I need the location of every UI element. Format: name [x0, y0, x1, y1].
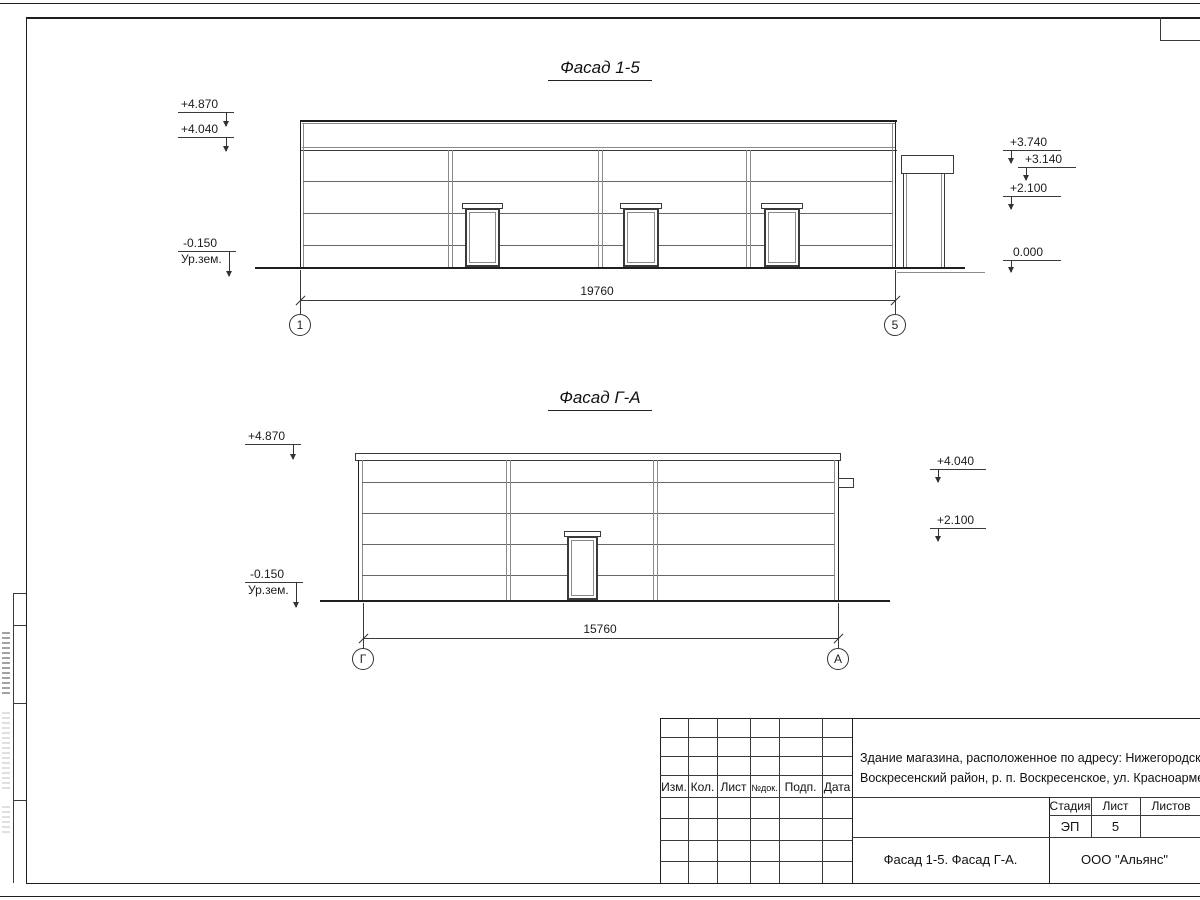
titleblock-row-line — [660, 756, 852, 757]
facade1-wall-right — [895, 120, 896, 268]
door-leaf — [627, 212, 655, 263]
elevation-mark-label: -0.150 — [250, 567, 284, 581]
dimension-line — [300, 300, 895, 301]
revision-col-header: Кол. — [688, 780, 717, 794]
titleblock-top — [660, 718, 1200, 719]
revision-col-header: Дата — [822, 780, 852, 794]
facade2-pilaster — [506, 460, 507, 600]
axis-circle: 5 — [884, 314, 906, 336]
facade2-siding-line — [362, 575, 834, 576]
ground-level-label: Ур.зем. — [181, 252, 222, 266]
elevation-arrow-icon — [1011, 196, 1012, 209]
elevation-mark-label: +4.040 — [181, 122, 218, 136]
facade1-pilaster — [448, 150, 449, 268]
annex-wall-left — [903, 174, 904, 268]
annex-wall-right-inner — [941, 174, 942, 268]
facade2-wall-right-inner — [834, 460, 835, 600]
facade1-ground-line-right — [897, 272, 985, 273]
axis-circle: Г — [352, 648, 374, 670]
dimension-value: 15760 — [550, 622, 650, 636]
axis-circle: 1 — [289, 314, 311, 336]
stamp-strip-divider — [13, 703, 26, 704]
elevation-mark-label: +4.870 — [248, 429, 285, 443]
extension-line — [300, 270, 301, 314]
elevation-mark-label: +2.100 — [1010, 181, 1047, 195]
elevation-arrow-icon — [226, 112, 227, 126]
door — [567, 536, 598, 600]
titleblock-column-line — [822, 718, 823, 883]
stamp-strip-line — [13, 593, 14, 883]
drawing-sheet: Фасад 1-5 +4.870 +4.040 -0.150 Ур.зем. +… — [0, 0, 1200, 900]
facade1-wall-left — [300, 120, 301, 268]
elevation-mark-label: +3.140 — [1025, 152, 1062, 166]
stamp-vertical-text — [2, 712, 10, 792]
facade1-pilaster — [452, 150, 453, 268]
revision-col-header: №док. — [750, 783, 779, 793]
sheet-header: Лист — [1091, 799, 1140, 813]
sheet-name: Фасад 1-5. Фасад Г-А. — [852, 852, 1049, 867]
facade1-title: Фасад 1-5 — [548, 58, 652, 81]
door-leaf — [571, 540, 594, 596]
elevation-arrow-icon — [1026, 167, 1027, 180]
facade2-pilaster — [657, 460, 658, 600]
elevation-mark-label: +3.740 — [1010, 135, 1047, 149]
stamp-vertical-text — [2, 806, 10, 836]
extension-line — [838, 603, 839, 648]
door — [465, 208, 500, 267]
titleblock-column-line — [717, 718, 718, 883]
titleblock-row-line — [660, 797, 852, 798]
stage-header: Стадия — [1049, 799, 1091, 813]
facade1-pilaster — [750, 150, 751, 268]
elevation-mark-label: +4.870 — [181, 97, 218, 111]
project-address-line1: Здание магазина, расположенное по адресу… — [860, 751, 1200, 765]
facade1-wall-right-inner — [892, 123, 893, 268]
facade1-wall-left-inner — [303, 123, 304, 268]
annex-wall-left-inner — [906, 174, 907, 268]
titleblock-row-line — [1049, 815, 1200, 816]
titleblock-row-line — [660, 737, 852, 738]
door — [764, 208, 800, 267]
door-leaf — [469, 212, 496, 263]
facade2-parapet — [355, 453, 841, 461]
door-leaf — [768, 212, 796, 263]
revision-col-header: Лист — [717, 780, 750, 794]
facade2-wall-left-inner — [362, 460, 363, 600]
facade2-title: Фасад Г-А — [548, 388, 652, 411]
pipe-stub — [838, 478, 854, 488]
elevation-mark-label: -0.150 — [183, 236, 217, 250]
elevation-arrow-icon — [229, 251, 230, 276]
elevation-arrow-icon — [938, 528, 939, 541]
corner-box-left — [1160, 17, 1161, 40]
titleblock-column-line — [779, 718, 780, 883]
facade1-pilaster — [746, 150, 747, 268]
revision-col-header: Подп. — [779, 780, 822, 794]
titleblock-row-line — [660, 861, 852, 862]
facade2-pilaster — [510, 460, 511, 600]
sheet-value: 5 — [1091, 819, 1140, 834]
elevation-arrow-icon — [938, 469, 939, 482]
inner-frame-left — [26, 17, 27, 883]
organization-name: ООО "Альянс" — [1049, 852, 1200, 867]
elevation-arrow-icon — [226, 137, 227, 151]
dimension-line — [363, 638, 838, 639]
facade2-pilaster — [653, 460, 654, 600]
elevation-arrow-icon — [293, 444, 294, 459]
door — [623, 208, 659, 267]
facade2-siding-line — [362, 544, 834, 545]
annex-canopy — [901, 155, 954, 174]
elevation-arrow-icon — [296, 582, 297, 607]
sheets-header: Листов — [1140, 799, 1200, 813]
facade2-wall-left — [358, 460, 359, 601]
facade2-siding-line — [362, 513, 834, 514]
outer-border-bottom — [0, 896, 1200, 897]
titleblock-row-line — [852, 797, 1200, 798]
project-address-line2: Воскресенский район, р. п. Воскресенское… — [860, 771, 1200, 785]
elevation-mark-label: +4.040 — [937, 454, 974, 468]
corner-box-bottom — [1160, 40, 1200, 41]
ground-level-label: Ур.зем. — [248, 583, 289, 597]
extension-line — [363, 603, 364, 648]
extension-line — [895, 270, 896, 314]
elevation-arrow-icon — [1011, 150, 1012, 163]
stamp-vertical-text — [2, 632, 10, 696]
facade1-pilaster — [598, 150, 599, 268]
outer-border-top — [0, 3, 1200, 4]
facade2-ground-line — [320, 600, 890, 602]
titleblock-row-line — [660, 840, 852, 841]
facade1-ground-line — [255, 267, 965, 269]
facade1-pilaster — [602, 150, 603, 268]
facade2-siding-line — [362, 482, 834, 483]
revision-col-header: Изм. — [660, 780, 688, 794]
facade1-parapet-inner-top — [302, 123, 895, 124]
inner-frame-top — [26, 17, 1200, 19]
stamp-strip-divider — [13, 625, 26, 626]
titleblock-column-line — [688, 718, 689, 883]
titleblock-column-line — [750, 718, 751, 883]
titleblock-row-line — [852, 837, 1200, 838]
titleblock-row-line — [660, 818, 852, 819]
facade1-parapet-inner-bottom — [302, 147, 895, 148]
annex-wall-right — [944, 174, 945, 268]
stamp-strip-divider — [13, 800, 26, 801]
titleblock-row-line — [660, 775, 852, 776]
facade1-parapet-top — [300, 120, 897, 122]
elevation-mark-label: 0.000 — [1013, 245, 1043, 259]
elevation-mark-label: +2.100 — [937, 513, 974, 527]
elevation-arrow-icon — [1011, 260, 1012, 272]
stamp-strip-divider — [13, 593, 26, 594]
titleblock-left — [660, 718, 661, 883]
inner-frame-bottom — [26, 883, 1200, 884]
stage-value: ЭП — [1049, 819, 1091, 834]
axis-circle: А — [827, 648, 849, 670]
dimension-value: 19760 — [547, 284, 647, 298]
